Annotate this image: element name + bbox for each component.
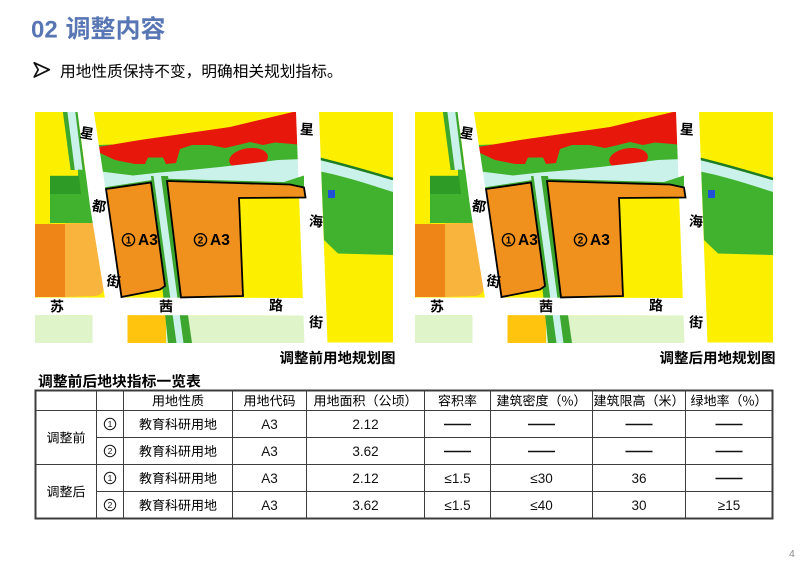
svg-text:≥15: ≥15 <box>718 498 740 513</box>
svg-text:2: 2 <box>108 446 113 456</box>
svg-text:A3: A3 <box>261 498 278 513</box>
svg-text:A3: A3 <box>590 232 610 249</box>
svg-text:≤1.5: ≤1.5 <box>444 471 470 486</box>
svg-text:2.12: 2.12 <box>352 417 378 432</box>
svg-text:1: 1 <box>126 236 132 247</box>
svg-text:2: 2 <box>578 236 584 247</box>
svg-text:≤40: ≤40 <box>530 498 552 513</box>
svg-text:30: 30 <box>631 498 646 513</box>
svg-text:1: 1 <box>108 473 113 483</box>
svg-text:2: 2 <box>198 236 204 247</box>
svg-text:≤30: ≤30 <box>530 471 552 486</box>
svg-text:4: 4 <box>789 548 795 560</box>
svg-text:≤1.5: ≤1.5 <box>444 498 470 513</box>
svg-text:1: 1 <box>506 236 512 247</box>
svg-text:2: 2 <box>108 500 113 510</box>
svg-text:36: 36 <box>631 471 646 486</box>
svg-text:A3: A3 <box>261 417 278 432</box>
svg-text:A3: A3 <box>261 444 278 459</box>
svg-text:2.12: 2.12 <box>352 471 378 486</box>
svg-text:1: 1 <box>108 419 113 429</box>
svg-text:A3: A3 <box>210 232 230 249</box>
svg-text:A3: A3 <box>261 471 278 486</box>
svg-text:3.62: 3.62 <box>352 498 378 513</box>
svg-text:3.62: 3.62 <box>352 444 378 459</box>
svg-text:02: 02 <box>31 17 58 44</box>
svg-text:A3: A3 <box>138 232 158 249</box>
svg-text:A3: A3 <box>518 232 538 249</box>
